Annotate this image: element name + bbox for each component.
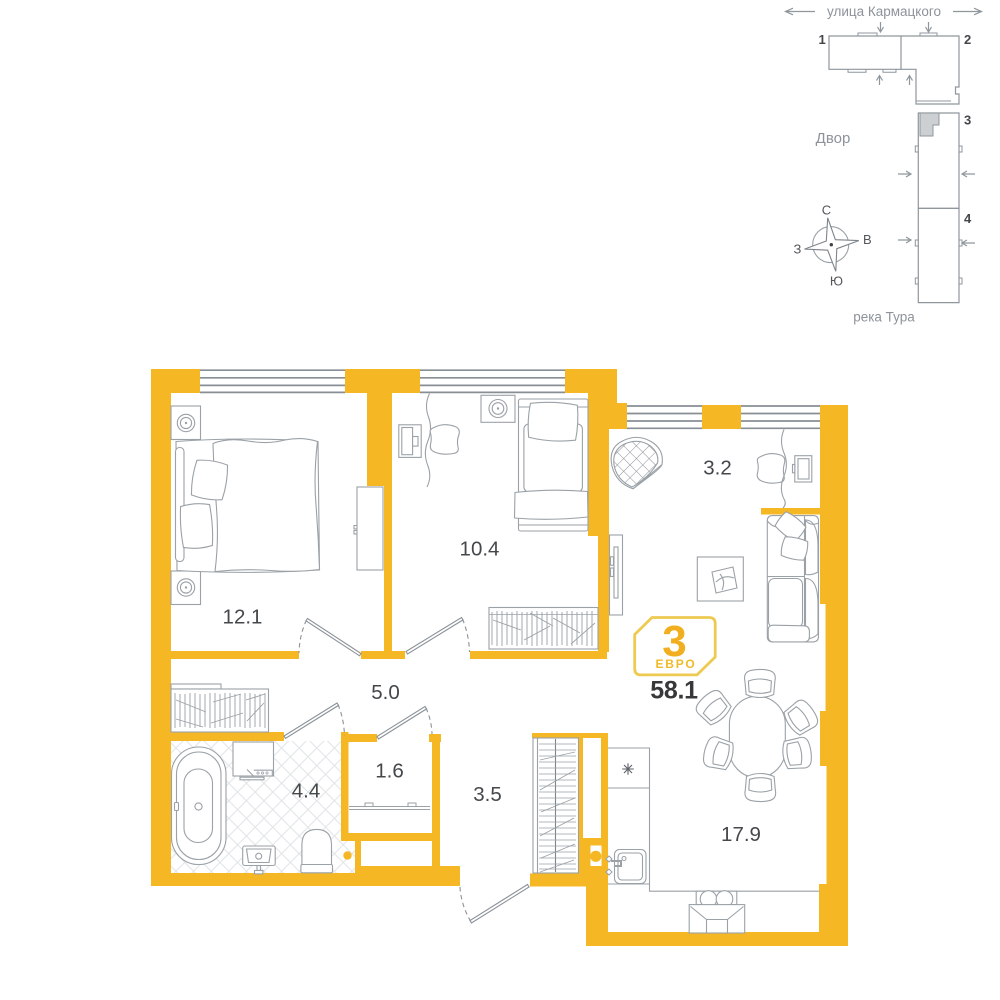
svg-text:Двор: Двор — [816, 130, 851, 147]
svg-text:2: 2 — [964, 32, 971, 47]
svg-text:3.5: 3.5 — [473, 783, 502, 806]
svg-text:58.1: 58.1 — [650, 677, 698, 705]
svg-text:З: З — [794, 242, 802, 257]
svg-text:река Тура: река Тура — [853, 310, 915, 325]
svg-text:4: 4 — [964, 211, 972, 226]
svg-text:С: С — [822, 203, 831, 218]
svg-text:4.4: 4.4 — [292, 780, 321, 803]
svg-text:5.0: 5.0 — [371, 681, 400, 704]
svg-text:ЕВРО: ЕВРО — [655, 657, 696, 671]
svg-text:1.6: 1.6 — [375, 760, 404, 783]
svg-text:3.2: 3.2 — [703, 457, 732, 480]
svg-text:улица Кармацкого: улица Кармацкого — [827, 4, 941, 19]
svg-text:12.1: 12.1 — [223, 606, 263, 629]
svg-text:3: 3 — [964, 113, 971, 128]
svg-text:В: В — [863, 232, 872, 247]
svg-text:Ю: Ю — [830, 274, 843, 289]
svg-text:1: 1 — [819, 32, 826, 47]
svg-text:17.9: 17.9 — [721, 823, 761, 846]
svg-text:10.4: 10.4 — [460, 538, 500, 561]
